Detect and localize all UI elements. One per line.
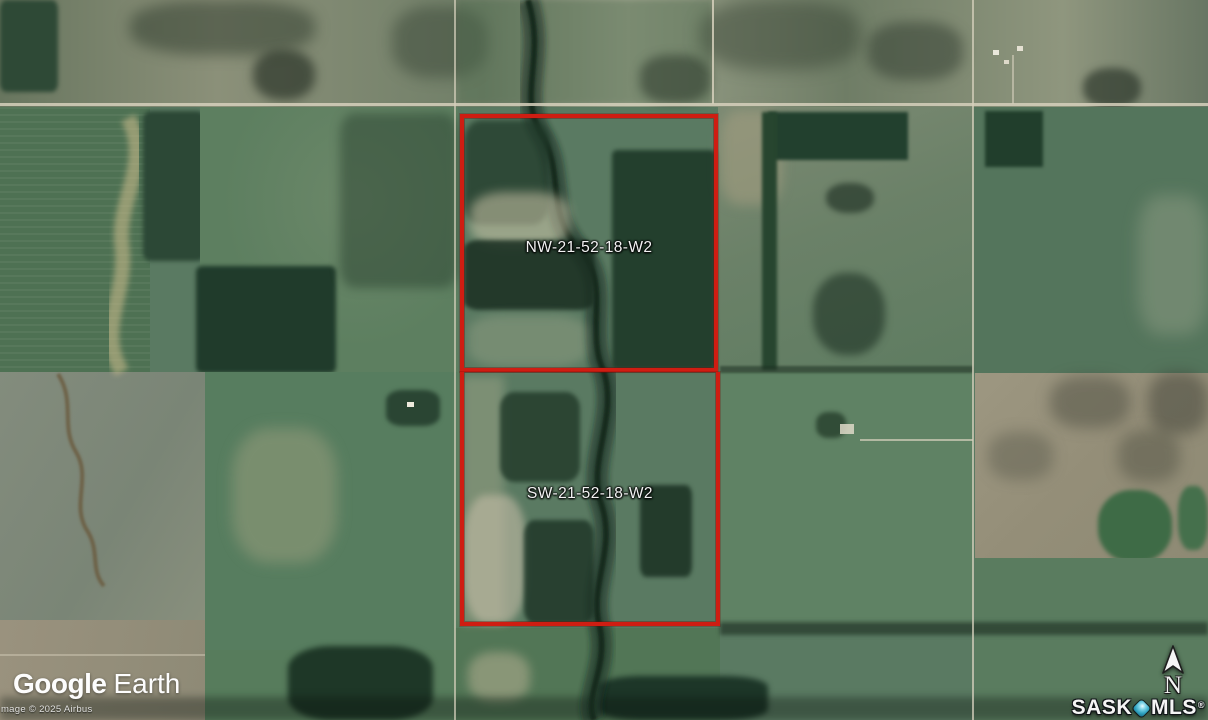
terrain-pond <box>1098 490 1172 562</box>
terrain-forest <box>0 0 58 92</box>
north-arrow-icon <box>1159 645 1187 675</box>
terrain-forest <box>762 112 777 370</box>
parcel-outline-sw: SW-21-52-18-W2 <box>460 372 720 626</box>
sask-mls-suffix: MLS <box>1151 696 1197 720</box>
imagery-copyright: Image © 2025 Airbus <box>0 704 93 715</box>
google-earth-logo-word1: Google <box>13 668 106 699</box>
terrain-pond <box>813 273 885 355</box>
terrain-forest <box>196 266 336 373</box>
terrain-shadow-band <box>0 697 1208 720</box>
farm-building <box>1004 60 1009 64</box>
sask-mls-watermark: SASK MLS ® <box>1072 696 1205 720</box>
google-earth-logo-word2: Earth <box>113 668 180 699</box>
road-spur <box>860 439 973 441</box>
parcel-outline-nw: NW-21-52-18-W2 <box>460 114 718 372</box>
terrain-smudge <box>988 432 1053 480</box>
terrain-forest <box>768 112 908 160</box>
farm-building <box>1017 46 1023 51</box>
road-vertical <box>1012 55 1014 104</box>
parcel-label-sw: SW-21-52-18-W2 <box>464 485 716 503</box>
terrain-forest <box>340 113 458 288</box>
terrain-smudge <box>130 0 315 55</box>
terrain-field <box>0 372 205 662</box>
road-vertical <box>454 0 456 720</box>
terrain-smudge <box>826 183 874 213</box>
terrain-field <box>0 107 150 373</box>
registered-trademark: ® <box>1198 696 1205 714</box>
farm-building <box>840 424 854 434</box>
road-vertical <box>712 0 714 104</box>
terrain-smudge <box>1138 195 1208 335</box>
road-spur <box>0 654 205 656</box>
parcel-label-nw: NW-21-52-18-W2 <box>464 239 714 257</box>
terrain-smudge <box>1083 68 1141 108</box>
terrain-smudge <box>700 0 860 70</box>
terrain-boundary-trees <box>720 366 973 373</box>
terrain-pond <box>1178 486 1208 550</box>
mls-diamond-icon <box>1132 699 1150 717</box>
terrain-smudge <box>868 22 963 80</box>
terrain-smudge <box>468 652 530 702</box>
compass: N <box>1152 645 1194 697</box>
farm-building <box>993 50 999 55</box>
satellite-map-canvas[interactable]: NW-21-52-18-W2 SW-21-52-18-W2 GoogleEart… <box>0 0 1208 720</box>
terrain-field <box>720 372 973 624</box>
terrain-smudge <box>1148 372 1208 434</box>
terrain-forest <box>143 111 205 261</box>
terrain-smudge <box>1050 376 1130 428</box>
road-horizontal <box>0 103 1208 106</box>
terrain-forest <box>985 111 1043 167</box>
terrain-smudge <box>232 428 337 563</box>
terrain-boundary-trees <box>720 622 1208 635</box>
google-earth-logo: GoogleEarth <box>13 668 180 700</box>
terrain-smudge <box>640 55 710 103</box>
compass-north-label: N <box>1152 675 1194 697</box>
road-vertical <box>972 0 974 720</box>
terrain-smudge <box>253 50 315 100</box>
terrain-forest <box>386 390 440 426</box>
terrain-smudge <box>1118 430 1180 482</box>
sask-mls-prefix: SASK <box>1072 696 1132 720</box>
farm-building <box>407 402 414 407</box>
